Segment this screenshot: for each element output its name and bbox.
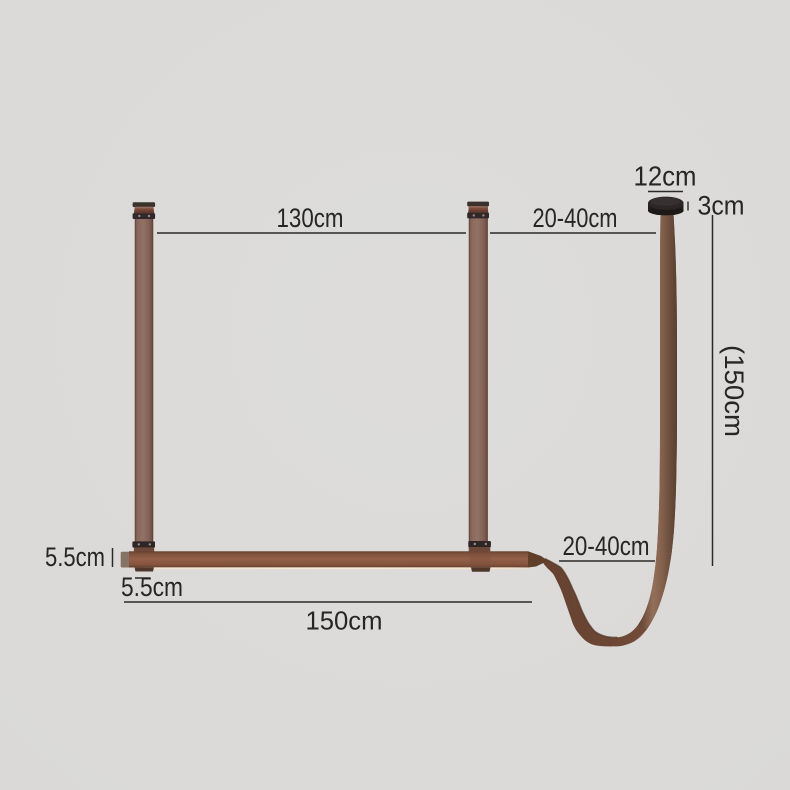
- svg-text:20-40cm: 20-40cm: [563, 531, 650, 561]
- svg-text:150cm: 150cm: [306, 606, 383, 636]
- svg-text:(150cm: (150cm: [719, 345, 749, 437]
- svg-text:130cm: 130cm: [277, 203, 344, 233]
- svg-text:3cm: 3cm: [698, 191, 745, 221]
- svg-text:20-40cm: 20-40cm: [533, 203, 618, 233]
- svg-text:12cm: 12cm: [634, 161, 697, 192]
- svg-text:5.5cm: 5.5cm: [45, 542, 105, 572]
- svg-text:5.5cm: 5.5cm: [121, 572, 183, 602]
